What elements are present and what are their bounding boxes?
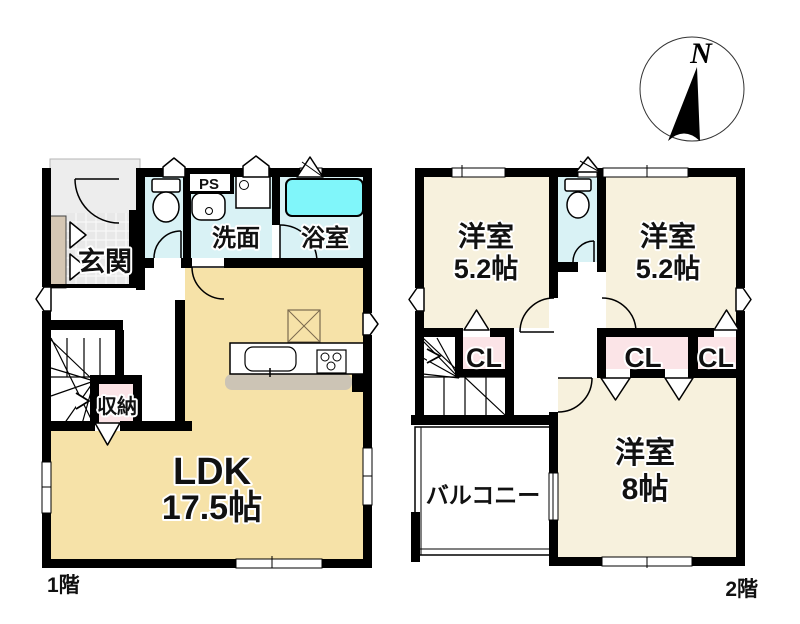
- compass-north-label: N: [689, 37, 713, 70]
- south-bedroom-size: 8帖: [622, 473, 669, 506]
- toilet-icon-2f: [565, 179, 591, 218]
- genkan-label: 玄関: [78, 246, 132, 277]
- floorplan-page: 玄関 洗面 浴室 PS 収納 LDK 17.5帖 1階: [0, 0, 800, 624]
- closet-east-label: CL: [698, 343, 734, 373]
- bathroom-label: 浴室: [301, 224, 349, 252]
- kitchen-sink-icon: [245, 347, 296, 371]
- compass-icon: N: [640, 37, 744, 141]
- counter-shadow: [225, 374, 352, 390]
- east-bedroom: [606, 177, 736, 328]
- east-bedroom-label: 洋室: [640, 220, 696, 252]
- west-bedroom: [424, 177, 549, 328]
- floorplan-canvas: 玄関 洗面 浴室 PS 収納 LDK 17.5帖 1階: [0, 0, 800, 624]
- washer-pan-icon: [236, 176, 270, 208]
- stove-icon: [317, 350, 346, 373]
- floor-plan-2f: 洋室 5.2帖 洋室 5.2帖 洋室 8帖 CL CL CL バルコニー 2階: [409, 157, 758, 601]
- ldk-label: LDK: [173, 451, 252, 493]
- east-bedroom-size: 5.2帖: [636, 254, 701, 284]
- closet-west-label: CL: [466, 343, 502, 373]
- bathtub-icon: [286, 179, 363, 216]
- west-bedroom-label: 洋室: [458, 220, 514, 252]
- storage-label: 収納: [97, 394, 137, 418]
- floor1-caption: 1階: [47, 574, 80, 597]
- pipe-space-label: PS: [199, 176, 219, 193]
- closet-center-label: CL: [624, 342, 661, 373]
- toilet-icon-1f: [152, 179, 180, 222]
- floor2-caption: 2階: [725, 578, 758, 601]
- balcony-label: バルコニー: [426, 482, 541, 508]
- washroom-label: 洗面: [212, 225, 260, 252]
- entrance-porch: [50, 159, 140, 216]
- west-bedroom-size: 5.2帖: [454, 254, 519, 284]
- floor-plan-1f: 玄関 洗面 浴室 PS 収納 LDK 17.5帖 1階: [36, 156, 378, 597]
- south-bedroom-label: 洋室: [615, 436, 675, 470]
- ldk-size-label: 17.5帖: [162, 489, 262, 527]
- wash-basin-icon: [192, 193, 225, 220]
